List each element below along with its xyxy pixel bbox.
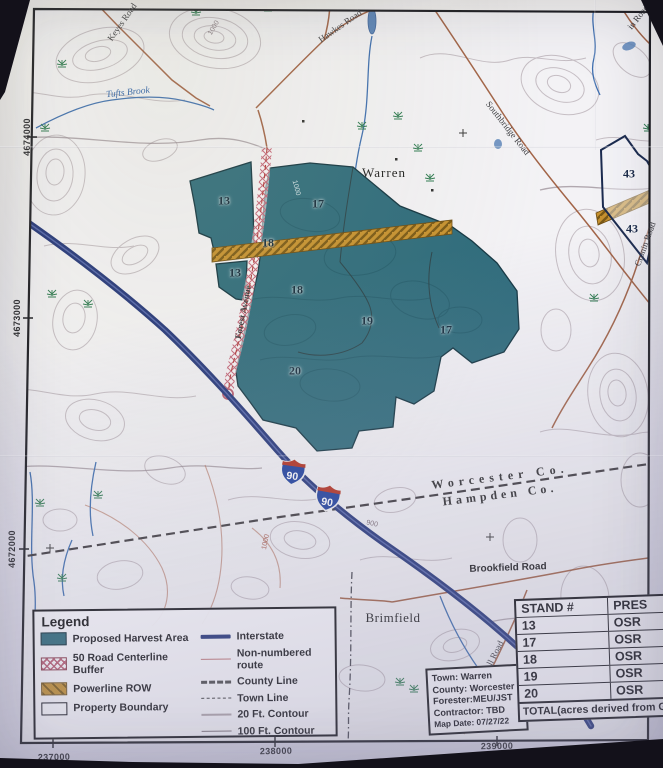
legend-item-label: Powerline ROW xyxy=(73,682,151,695)
legend-item-20ft-contour: 20 Ft. Contour xyxy=(201,707,335,720)
contour100-line-sample xyxy=(202,730,232,732)
legend-item-property: Property Boundary xyxy=(41,700,201,715)
cell-stand: 19 xyxy=(518,666,611,685)
legend-item-label: 50 Road Centerline Buffer xyxy=(73,650,201,675)
legend-item-powerline: Powerline ROW xyxy=(41,681,201,696)
cell-pres: OSR xyxy=(609,612,663,631)
legend-item-label: County Line xyxy=(237,675,298,688)
legend-item-label: 100 Ft. Contour xyxy=(238,724,315,737)
i90-shield-number: 90 xyxy=(286,470,299,484)
legend-panel: Legend Proposed Harvest Area 50 Road Cen… xyxy=(32,606,337,739)
powerline-row-swatch xyxy=(41,682,67,695)
cell-stand: 13 xyxy=(517,615,610,634)
map-info-box: Town: Warren County: Worcester Forester:… xyxy=(425,663,528,735)
legend-item-label: Proposed Harvest Area xyxy=(73,631,189,644)
road-buffer-swatch xyxy=(41,657,67,670)
stand-table: STAND # PRES 13 OSR 17 OSR 18 OSR 19 OSR… xyxy=(514,593,663,722)
legend-item-county-line: County Line xyxy=(201,674,335,687)
cell-pres: OSR xyxy=(610,646,663,665)
legend-title: Legend xyxy=(41,611,334,629)
contour20-line-sample xyxy=(201,714,231,716)
cell-stand: 18 xyxy=(518,649,611,668)
legend-item-100ft-contour: 100 Ft. Contour xyxy=(202,724,336,737)
legend-item-label: Property Boundary xyxy=(73,701,168,714)
stand-table-header-pres: PRES xyxy=(608,595,663,614)
photographed-harvest-map: 90 90 4674000 4673000 4672000 237000 238… xyxy=(0,0,663,768)
interstate-line-sample xyxy=(201,634,231,639)
legend-item-label: Non-numbered route xyxy=(237,646,335,671)
cell-pres: OSR xyxy=(609,629,663,648)
cell-pres: OSR xyxy=(610,663,663,682)
pond xyxy=(368,8,376,34)
legend-item-route: Non-numbered route xyxy=(201,646,335,671)
property-boundary-swatch xyxy=(41,702,67,715)
legend-item-label: 20 Ft. Contour xyxy=(237,708,308,721)
legend-item-interstate: Interstate xyxy=(201,629,335,642)
cell-stand: 20 xyxy=(519,683,612,702)
town-line-sample xyxy=(201,698,231,699)
i90-shield-number: 90 xyxy=(320,495,334,509)
harvest-area-swatch xyxy=(41,632,67,645)
county-line-sample xyxy=(201,680,231,683)
cell-stand: 17 xyxy=(517,632,610,651)
legend-item-buffer: 50 Road Centerline Buffer xyxy=(41,650,201,676)
legend-item-town-line: Town Line xyxy=(201,691,335,704)
pond xyxy=(494,139,502,149)
route-line-sample xyxy=(201,658,231,660)
legend-item-label: Interstate xyxy=(237,630,284,642)
stand-table-header-stand: STAND # xyxy=(516,598,609,617)
cell-pres: OSR xyxy=(611,680,663,699)
legend-item-label: Town Line xyxy=(237,691,288,704)
legend-item-harvest: Proposed Harvest Area xyxy=(41,631,201,646)
